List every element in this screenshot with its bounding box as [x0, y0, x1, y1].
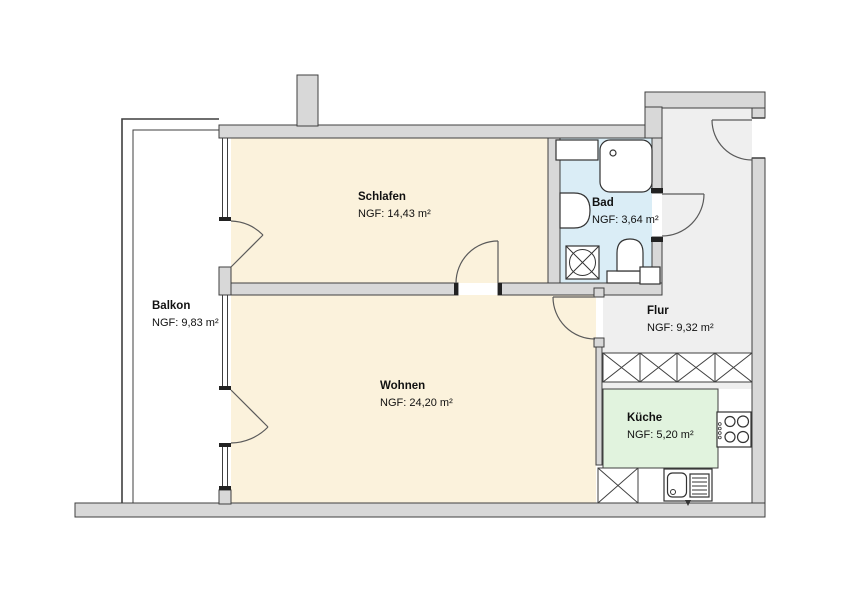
kitchen-sink-icon — [664, 469, 712, 506]
wohnen-name: Wohnen — [380, 380, 453, 393]
wohnen-area: NGF: 24,20 m² — [380, 397, 453, 410]
kueche-area: NGF: 5,20 m² — [627, 429, 694, 442]
schlafen-label: Schlafen NGF: 14,43 m² — [358, 191, 431, 221]
balkon-label: Balkon NGF: 9,83 m² — [152, 300, 219, 330]
wall-entry-left — [645, 107, 662, 138]
bad-label: Bad NGF: 3,64 m² — [592, 197, 659, 227]
wall-top — [219, 125, 662, 138]
wall-flur-jamb-bottom — [594, 338, 604, 347]
bad-name: Bad — [592, 197, 659, 210]
entry-opening-marks — [752, 118, 765, 158]
tall-cabinet-icon — [598, 468, 638, 503]
wall-entry-top — [645, 92, 765, 108]
wall-flur-jamb-top — [594, 288, 604, 297]
wall-divider-left — [231, 283, 458, 295]
flur-name: Flur — [647, 305, 714, 318]
bathroom-cabinet-icon — [556, 140, 598, 160]
flur-area: NGF: 9,32 m² — [647, 322, 714, 335]
kueche-name: Küche — [627, 412, 694, 425]
flur-label: Flur NGF: 9,32 m² — [647, 305, 714, 335]
floor-plan: Balkon NGF: 9,83 m² Schlafen NGF: 14,43 … — [0, 0, 842, 595]
wall-bad-flur-upper — [652, 138, 662, 193]
bad-area: NGF: 3,64 m² — [592, 214, 659, 227]
wall-right-main — [752, 158, 765, 517]
balkon-name: Balkon — [152, 300, 219, 313]
wardrobe-icon — [603, 353, 752, 382]
washing-machine-icon — [566, 246, 599, 279]
wall-left-bottom — [219, 490, 231, 504]
washbasin-icon — [560, 193, 590, 228]
shaft-icon — [640, 267, 660, 284]
wohnen-label: Wohnen NGF: 24,20 m² — [380, 380, 453, 410]
shower-icon — [600, 140, 652, 192]
wall-left-pier — [219, 267, 231, 295]
wall-bottom — [75, 503, 765, 517]
wall-divider-right — [498, 283, 662, 295]
kueche-label: Küche NGF: 5,20 m² — [627, 412, 694, 442]
floor-plan-drawing — [0, 0, 842, 595]
wall-wohnen-kueche — [596, 347, 602, 465]
schlafen-area: NGF: 14,43 m² — [358, 208, 431, 221]
schlafen-name: Schlafen — [358, 191, 431, 204]
wall-right-upper — [752, 108, 765, 118]
balkon-area: NGF: 9,83 m² — [152, 317, 219, 330]
window-glazing — [223, 138, 228, 490]
wall-top-stub — [297, 75, 318, 126]
stove-icon — [717, 412, 751, 447]
